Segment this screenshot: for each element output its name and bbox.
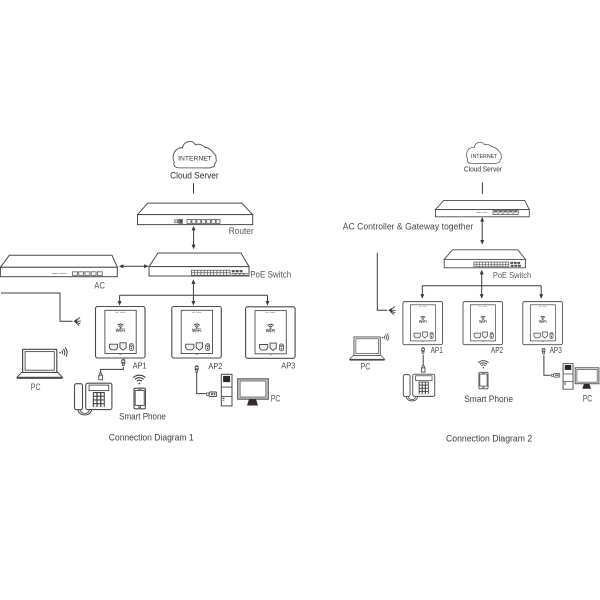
svg-text:PoE Switch: PoE Switch — [493, 270, 532, 280]
svg-text:AP2: AP2 — [208, 361, 222, 371]
svg-text:INTERNET: INTERNET — [178, 156, 212, 163]
svg-text:Connection Diagram 1: Connection Diagram 1 — [109, 432, 194, 442]
svg-text:AP1: AP1 — [133, 360, 147, 370]
svg-text:Cloud Server: Cloud Server — [464, 165, 503, 174]
svg-text:Smart Phone: Smart Phone — [464, 394, 513, 404]
svg-text:PC: PC — [361, 362, 371, 372]
svg-text:AP3: AP3 — [281, 360, 295, 370]
svg-text:Router: Router — [229, 226, 254, 236]
svg-text:PC: PC — [583, 394, 593, 404]
svg-text:PC: PC — [31, 382, 41, 392]
svg-text:INTERNET: INTERNET — [471, 154, 498, 160]
svg-text:AP3: AP3 — [550, 345, 562, 355]
svg-text:PoE Switch: PoE Switch — [250, 269, 291, 279]
svg-text:AP2: AP2 — [491, 345, 503, 355]
svg-text:AC Controller & Gateway togeth: AC Controller & Gateway together — [343, 221, 474, 231]
svg-text:Smart Phone: Smart Phone — [119, 410, 166, 421]
svg-text:AC: AC — [94, 281, 105, 292]
svg-text:AP1: AP1 — [431, 345, 443, 355]
svg-text:Cloud Server: Cloud Server — [170, 170, 219, 180]
svg-text:PC: PC — [271, 394, 281, 404]
svg-text:Connection Diagram 2: Connection Diagram 2 — [446, 433, 532, 443]
